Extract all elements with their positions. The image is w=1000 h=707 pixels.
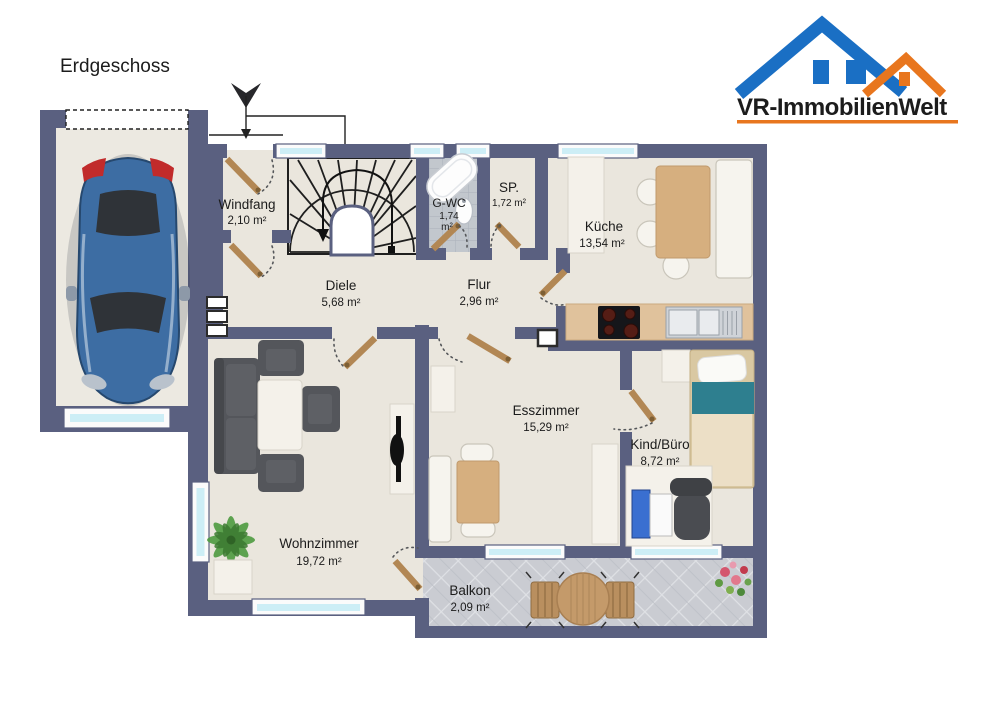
plant xyxy=(207,516,255,564)
brand-logo: VR-ImmobilienWelt xyxy=(737,24,958,124)
room-label-wohnzimmer: Wohnzimmer xyxy=(279,536,359,551)
floor-title: Erdgeschoss xyxy=(60,56,170,77)
side-mirror xyxy=(66,286,77,301)
room-area-kind-buero: 8,72 m² xyxy=(641,456,680,468)
room-area-kueche: 13,54 m² xyxy=(579,238,625,250)
window xyxy=(276,144,326,158)
room-area-gwc: 1,74 xyxy=(439,211,459,222)
room-label-windfang: Windfang xyxy=(218,197,275,212)
laptop xyxy=(632,490,672,538)
room-label-gwc: G-WC xyxy=(432,196,466,210)
bench xyxy=(429,456,451,542)
armchair xyxy=(258,340,304,376)
room-area-gwc-unit: m² xyxy=(441,222,453,233)
bench xyxy=(716,160,752,278)
tv-board xyxy=(390,404,414,494)
room-area-wohnzimmer: 19,72 m² xyxy=(296,556,342,568)
balcony-table xyxy=(557,573,609,625)
window xyxy=(410,144,444,158)
room-label-esszimmer: Esszimmer xyxy=(513,403,580,418)
cabinet xyxy=(592,444,618,544)
room-label-flur: Flur xyxy=(467,277,491,292)
staircase xyxy=(288,158,418,255)
garage-window xyxy=(64,408,170,428)
room-label-kueche: Küche xyxy=(585,219,623,234)
stair-newel-arch xyxy=(331,206,373,255)
window xyxy=(558,144,638,158)
window xyxy=(192,482,209,562)
kitchen-table xyxy=(656,166,710,258)
blanket xyxy=(692,382,754,414)
shaft-symbol xyxy=(538,330,557,346)
room-label-diele: Diele xyxy=(326,278,357,293)
room-area-balkon: 2,09 m² xyxy=(451,602,490,614)
window xyxy=(485,545,565,559)
sofa xyxy=(214,358,260,474)
entrance-marker xyxy=(209,83,345,144)
window xyxy=(631,545,722,559)
room-label-balkon: Balkon xyxy=(449,583,490,598)
side-mirror xyxy=(179,286,190,301)
garage-door xyxy=(66,110,188,129)
room-label-sp: SP. xyxy=(499,180,519,195)
dining-table xyxy=(457,461,499,523)
office-chair xyxy=(670,478,712,540)
nightstand xyxy=(662,350,690,382)
armchair xyxy=(302,386,340,432)
window xyxy=(252,599,365,615)
armchair xyxy=(258,454,304,492)
room-label-kind-buero: Kind/Büro xyxy=(630,437,689,452)
room-area-flur: 2,96 m² xyxy=(460,296,499,308)
room-area-diele: 5,68 m² xyxy=(322,297,361,309)
wall-shelf-symbol xyxy=(207,297,227,336)
coffee-table xyxy=(258,380,302,450)
floorplan-page: VR-ImmobilienWelt Erdgeschoss Windfang 2… xyxy=(0,0,1000,707)
pillow xyxy=(697,354,747,384)
room-area-sp: 1,72 m² xyxy=(492,198,527,209)
kitchen-sink xyxy=(666,307,742,338)
cabinet xyxy=(214,560,252,594)
car xyxy=(66,154,190,406)
chair xyxy=(461,444,493,462)
room-area-windfang: 2,10 m² xyxy=(228,215,267,227)
sideboard xyxy=(431,366,455,412)
brand-name: VR-ImmobilienWelt xyxy=(737,94,947,121)
stove xyxy=(598,306,640,339)
room-area-esszimmer: 15,29 m² xyxy=(523,422,569,434)
